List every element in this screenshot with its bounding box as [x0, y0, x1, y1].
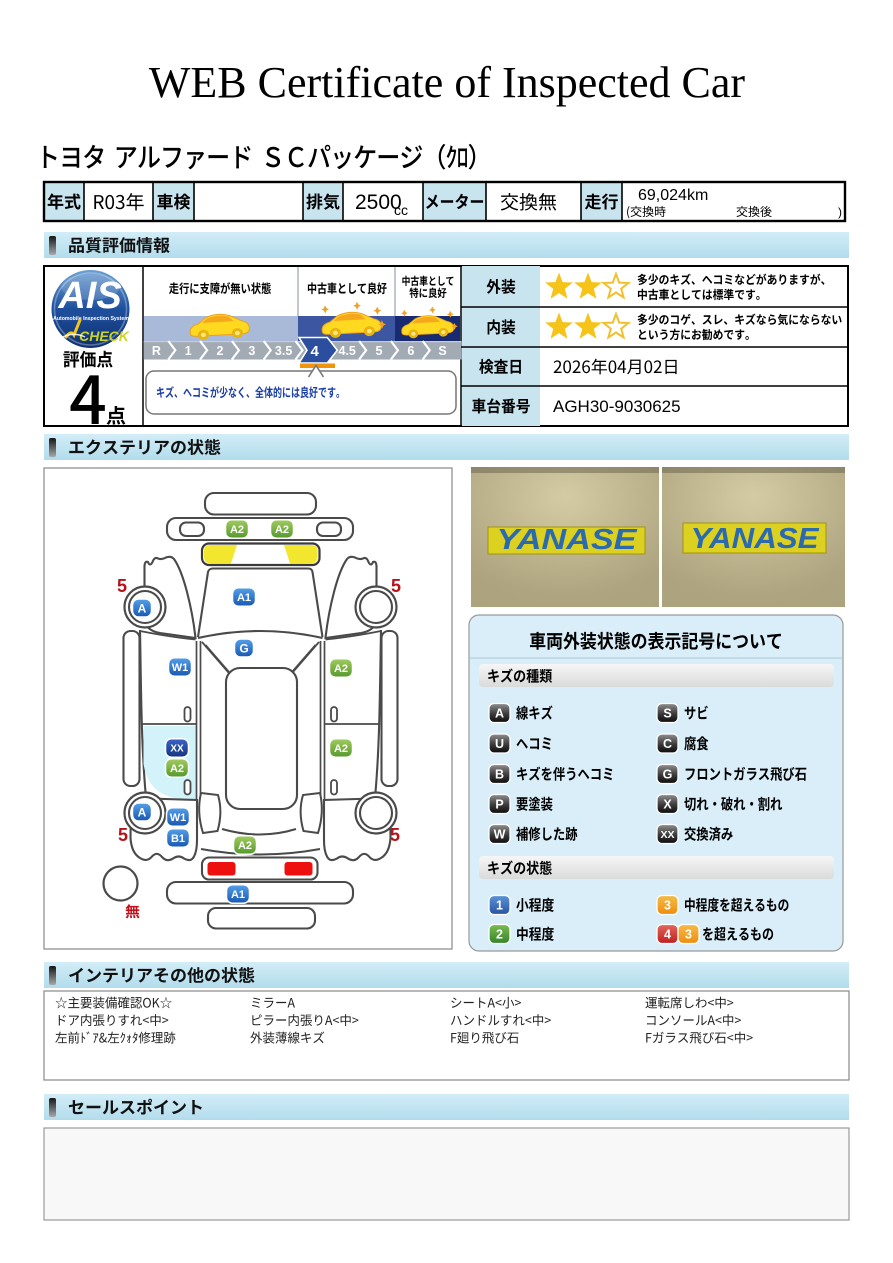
svg-text:4: 4 — [310, 343, 319, 360]
svg-text:3.5: 3.5 — [275, 344, 292, 358]
svg-text:3: 3 — [685, 928, 692, 942]
svg-text:5: 5 — [390, 825, 400, 845]
svg-text:U: U — [495, 737, 504, 751]
svg-text:5: 5 — [391, 576, 401, 596]
svg-text:WEB Certificate of Inspected C: WEB Certificate of Inspected Car — [149, 58, 746, 107]
svg-text:B: B — [495, 768, 504, 782]
svg-text:C: C — [663, 737, 672, 751]
svg-text:): ) — [838, 205, 842, 219]
svg-text:Automobile Inspection System: Automobile Inspection System — [53, 316, 129, 322]
svg-text:A: A — [138, 805, 147, 819]
svg-text:2: 2 — [217, 344, 224, 358]
svg-text:B1: B1 — [171, 833, 185, 845]
svg-text:XX: XX — [170, 744, 184, 755]
svg-text:W1: W1 — [170, 812, 187, 824]
svg-text:XX: XX — [660, 829, 674, 841]
svg-text:A: A — [495, 707, 504, 721]
svg-text:A1: A1 — [231, 889, 245, 901]
svg-text:R: R — [152, 344, 161, 358]
svg-text:A2: A2 — [334, 743, 348, 755]
svg-text:YANASE: YANASE — [691, 523, 820, 555]
svg-text:A2: A2 — [230, 524, 244, 536]
svg-text:A2: A2 — [334, 663, 348, 675]
svg-text:A2: A2 — [170, 763, 184, 775]
svg-text:CHECK: CHECK — [79, 328, 130, 344]
svg-text:69,024km: 69,024km — [638, 187, 708, 204]
svg-text:2: 2 — [496, 928, 503, 942]
svg-text:cc: cc — [394, 202, 408, 218]
svg-text:3: 3 — [664, 899, 671, 913]
svg-text:YANASE: YANASE — [497, 524, 638, 556]
svg-text:AIS: AIS — [57, 275, 121, 317]
svg-text:5: 5 — [118, 825, 128, 845]
svg-text:3: 3 — [248, 344, 255, 358]
svg-text:S: S — [438, 344, 446, 358]
svg-text:W1: W1 — [172, 662, 189, 674]
svg-text:X: X — [663, 798, 672, 812]
svg-text:G: G — [239, 641, 248, 655]
svg-text:S: S — [663, 707, 671, 721]
svg-text:5: 5 — [376, 344, 383, 358]
svg-text:5: 5 — [117, 576, 127, 596]
svg-text:W: W — [494, 828, 506, 842]
svg-text:4.5: 4.5 — [339, 344, 356, 358]
svg-text:P: P — [495, 798, 503, 812]
svg-text:A2: A2 — [275, 524, 289, 536]
svg-text:A: A — [138, 601, 147, 615]
svg-text:A1: A1 — [237, 592, 251, 604]
svg-text:6: 6 — [407, 344, 414, 358]
svg-text:G: G — [663, 768, 673, 782]
svg-text:A2: A2 — [238, 840, 252, 852]
svg-text:1: 1 — [496, 899, 503, 913]
svg-text:AGH30-9030625: AGH30-9030625 — [553, 397, 681, 416]
svg-text:4: 4 — [664, 928, 671, 942]
svg-text:1: 1 — [185, 344, 192, 358]
